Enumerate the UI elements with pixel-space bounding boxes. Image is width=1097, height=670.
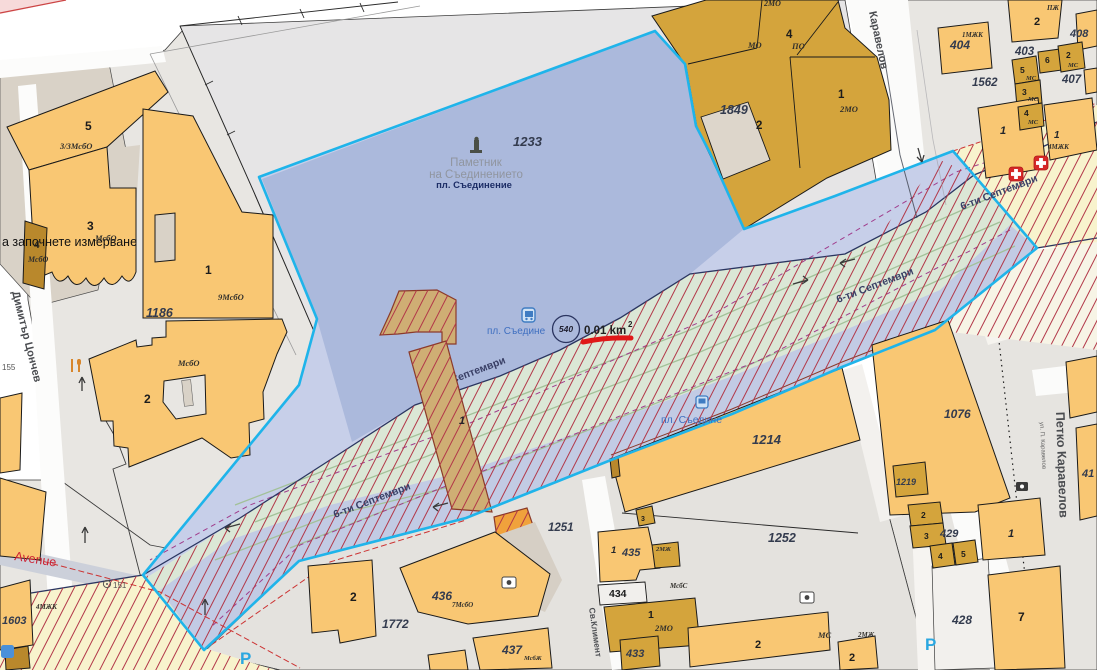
svg-text:151: 151	[113, 581, 127, 590]
svg-text:1: 1	[205, 263, 212, 277]
svg-text:а започнете измерване: а започнете измерване	[2, 235, 137, 249]
svg-text:1: 1	[648, 609, 654, 621]
svg-text:2МО: 2МО	[763, 0, 781, 8]
svg-text:1849: 1849	[720, 103, 748, 117]
svg-text:9МсбО: 9МсбО	[218, 292, 244, 302]
svg-text:1: 1	[838, 89, 845, 101]
svg-text:41: 41	[1081, 468, 1094, 480]
svg-text:1076: 1076	[944, 407, 971, 421]
svg-text:2МО: 2МО	[839, 104, 858, 114]
svg-text:436: 436	[431, 589, 452, 603]
svg-text:433: 433	[625, 648, 644, 660]
svg-text:403: 403	[1014, 46, 1035, 58]
svg-text:пл. Съедине: пл. Съедине	[487, 326, 546, 337]
svg-text:404: 404	[949, 38, 970, 52]
svg-text:408: 408	[1069, 28, 1089, 40]
svg-text:Паметник: Паметник	[450, 157, 503, 169]
svg-text:407: 407	[1061, 74, 1082, 86]
svg-text:2: 2	[1034, 16, 1040, 28]
svg-text:3: 3	[924, 531, 929, 541]
svg-text:3/3МсбО: 3/3МсбО	[59, 141, 92, 151]
svg-text:МсбС: МсбС	[669, 582, 688, 590]
svg-text:7МсбО: 7МсбО	[452, 601, 473, 609]
svg-text:МсбО: МсбО	[94, 233, 116, 243]
svg-text:2: 2	[628, 320, 633, 329]
svg-text:1772: 1772	[382, 617, 409, 631]
svg-text:4: 4	[786, 29, 793, 41]
svg-text:0.01 km: 0.01 km	[584, 325, 626, 337]
svg-text:1233: 1233	[513, 134, 543, 149]
svg-text:4: 4	[34, 240, 40, 251]
svg-text:2МЖ: 2МЖ	[857, 631, 875, 639]
svg-text:6: 6	[1045, 55, 1050, 65]
svg-text:1214: 1214	[752, 432, 782, 447]
svg-text:2: 2	[144, 392, 151, 406]
svg-text:4МЖК: 4МЖК	[35, 603, 58, 611]
svg-text:435: 435	[621, 547, 641, 559]
svg-text:3: 3	[87, 219, 94, 233]
svg-text:2: 2	[756, 120, 762, 132]
svg-text:5: 5	[1020, 65, 1025, 75]
svg-text:437: 437	[501, 643, 523, 657]
svg-text:1252: 1252	[768, 531, 796, 545]
svg-text:МС: МС	[1027, 119, 1039, 126]
svg-text:4МЖК: 4МЖК	[1047, 143, 1070, 151]
svg-text:1: 1	[1008, 528, 1014, 540]
svg-text:1: 1	[1054, 130, 1060, 141]
svg-text:5: 5	[85, 119, 92, 133]
svg-text:МС: МС	[1067, 62, 1079, 69]
svg-text:пл. Съедине: пл. Съедине	[661, 414, 722, 426]
svg-text:ПО: ПО	[791, 41, 805, 51]
svg-text:P: P	[925, 635, 936, 654]
svg-text:пл. Съединение: пл. Съединение	[436, 180, 512, 191]
svg-text:2: 2	[849, 652, 855, 664]
svg-text:МО: МО	[747, 40, 762, 50]
svg-text:5: 5	[961, 549, 966, 559]
svg-text:МсбО: МсбО	[27, 255, 48, 264]
svg-text:ПЖ: ПЖ	[1046, 4, 1059, 12]
svg-text:4: 4	[938, 551, 943, 561]
svg-text:1: 1	[459, 415, 465, 427]
svg-text:1: 1	[611, 545, 616, 556]
svg-text:МС: МС	[817, 630, 832, 640]
svg-text:1251: 1251	[548, 522, 574, 534]
svg-text:1: 1	[1000, 125, 1006, 137]
svg-text:2МО: 2МО	[654, 623, 673, 633]
svg-text:2МЖ: 2МЖ	[655, 546, 672, 553]
svg-text:428: 428	[951, 613, 972, 627]
svg-text:МС: МС	[1027, 96, 1039, 103]
svg-text:1603: 1603	[2, 615, 26, 627]
svg-text:МсбЖ: МсбЖ	[523, 655, 543, 662]
svg-text:7: 7	[1018, 610, 1025, 624]
svg-text:1562: 1562	[972, 77, 998, 89]
svg-text:МС: МС	[1025, 75, 1037, 82]
svg-text:2: 2	[350, 590, 357, 604]
svg-text:1186: 1186	[146, 306, 174, 320]
svg-text:2: 2	[1066, 50, 1071, 60]
svg-text:МсбО: МсбО	[177, 358, 199, 368]
svg-text:4: 4	[1024, 108, 1029, 118]
svg-text:2: 2	[921, 510, 926, 520]
svg-text:1МЖК: 1МЖК	[962, 31, 984, 39]
svg-text:434: 434	[609, 588, 627, 600]
svg-text:429: 429	[939, 528, 959, 540]
svg-text:540: 540	[559, 324, 573, 334]
svg-text:3: 3	[641, 516, 645, 523]
svg-text:3: 3	[1022, 87, 1027, 97]
svg-text:155: 155	[2, 363, 16, 372]
svg-text:1219: 1219	[896, 477, 916, 487]
svg-text:2: 2	[755, 639, 761, 651]
svg-text:P: P	[240, 649, 251, 668]
